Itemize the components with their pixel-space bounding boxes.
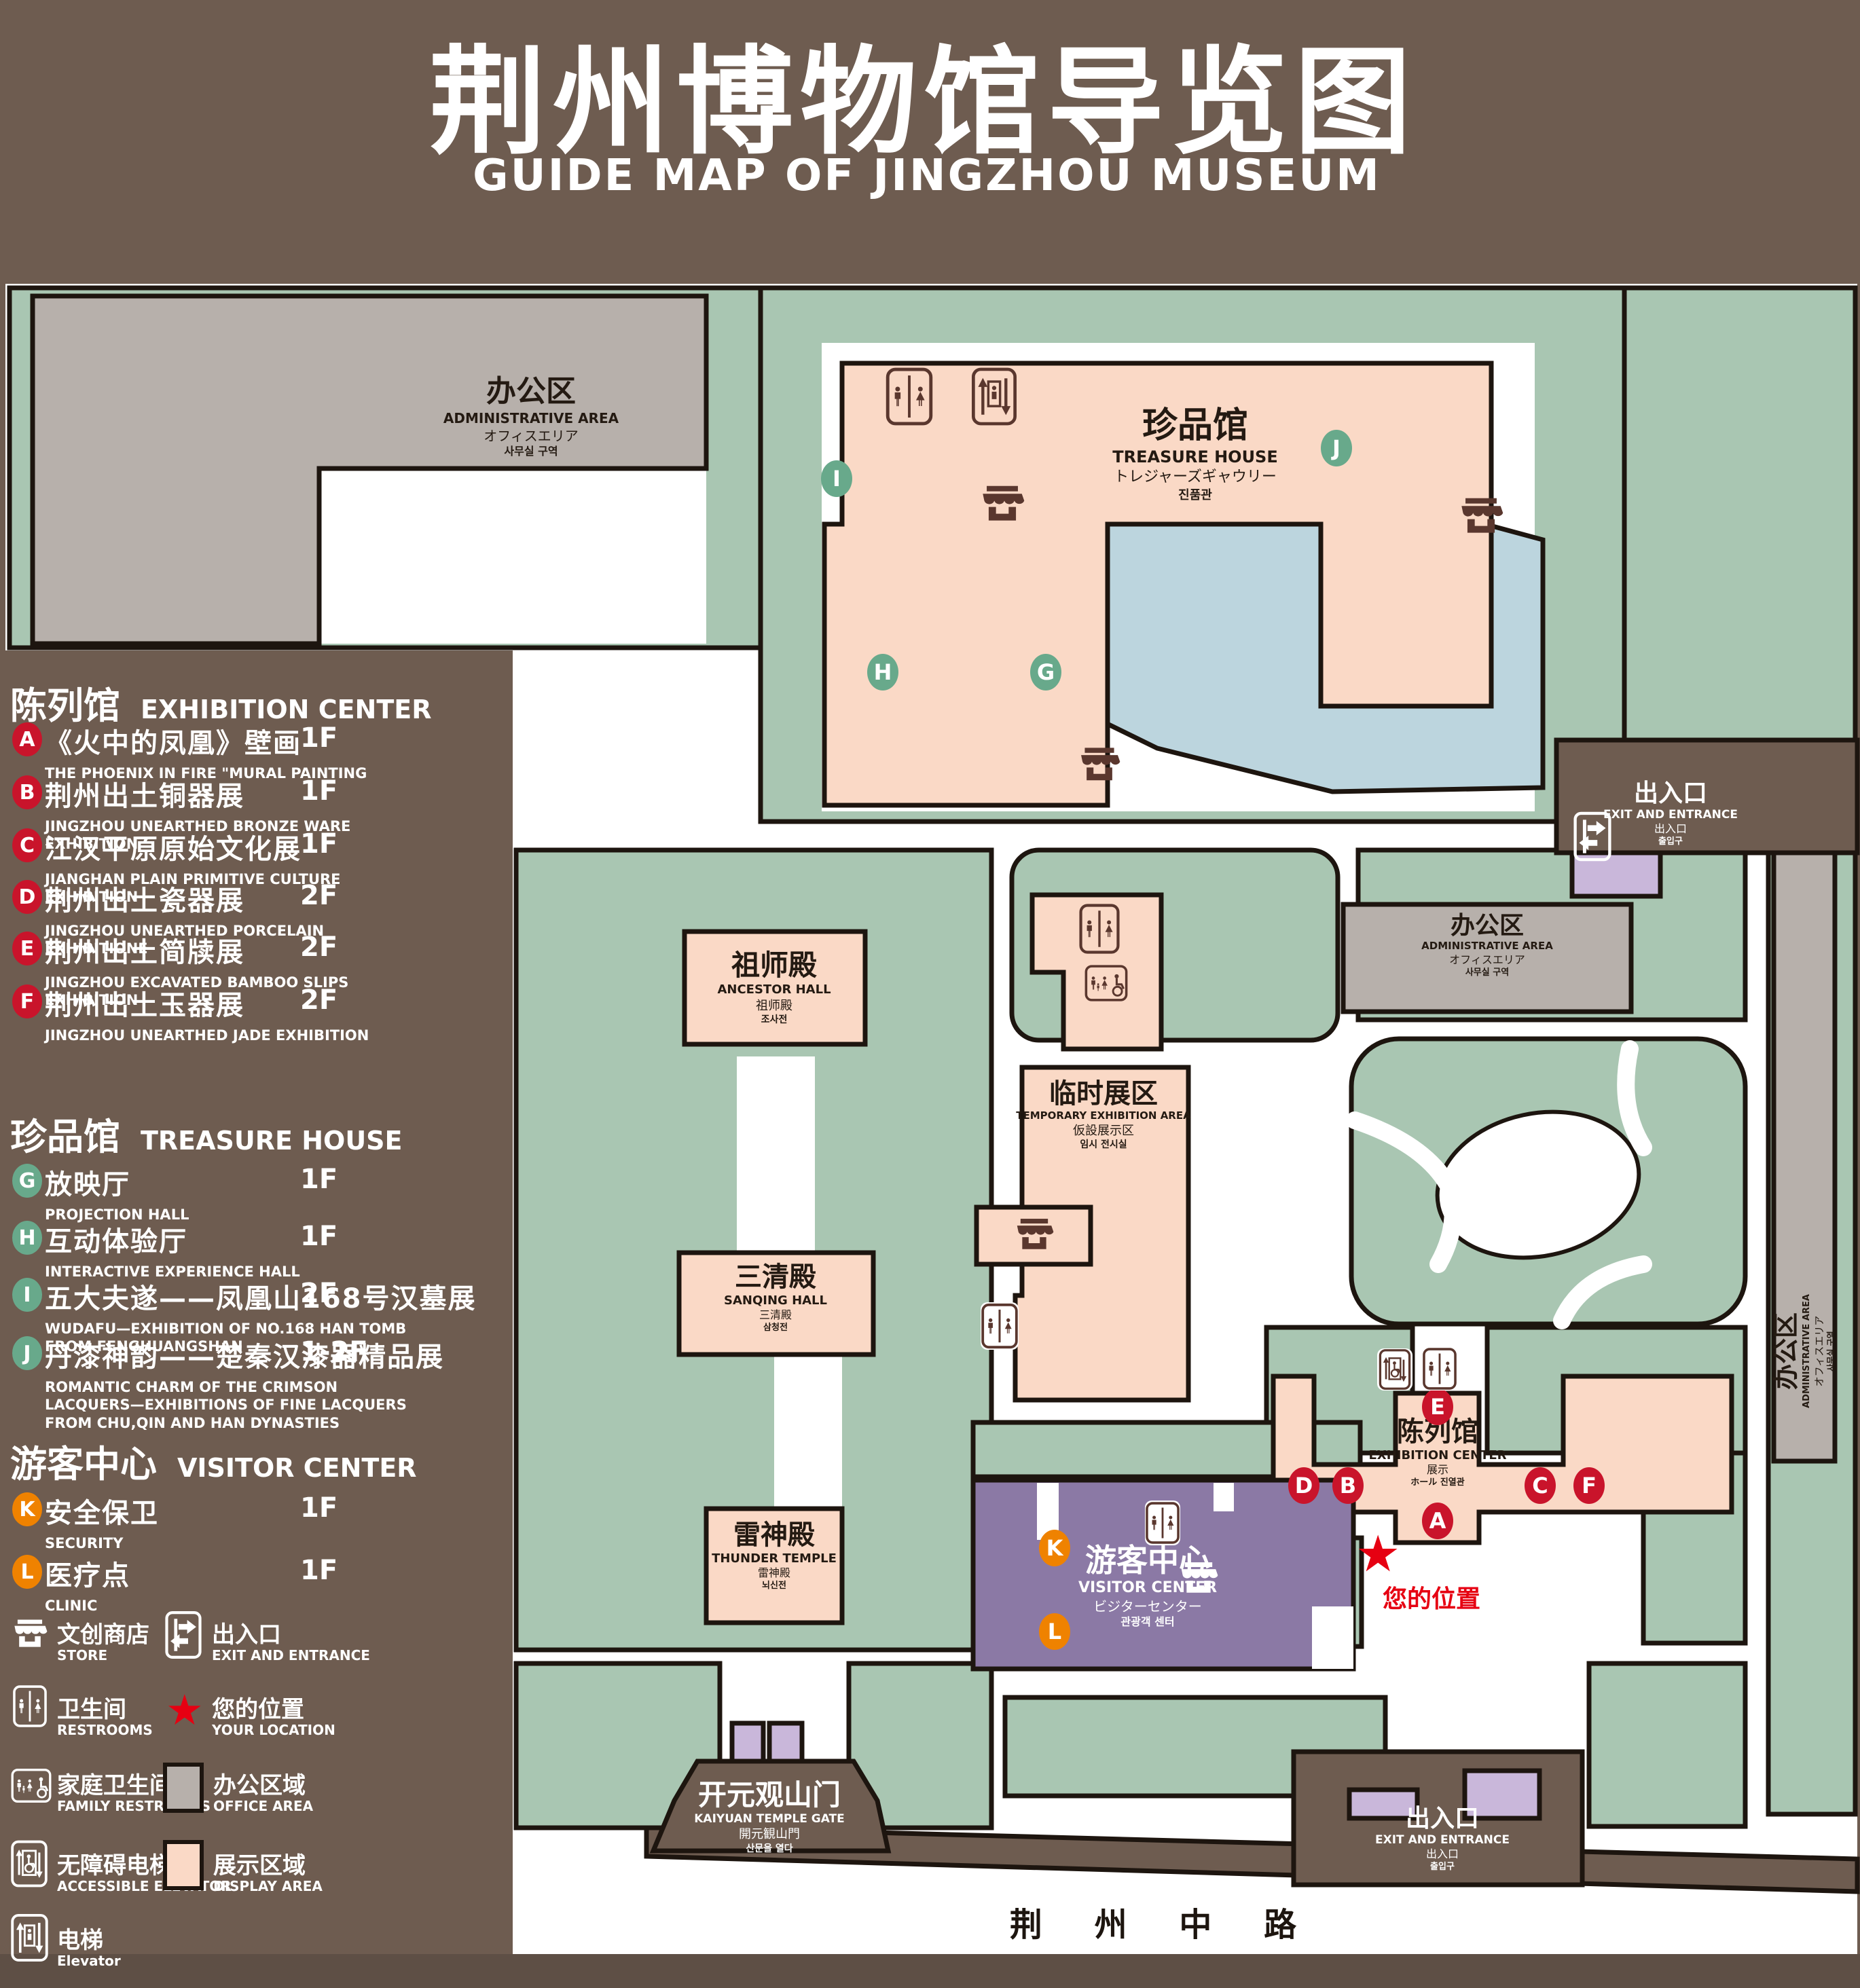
marker-e: E bbox=[1422, 1388, 1453, 1425]
store-icon bbox=[1459, 496, 1503, 538]
store-icon bbox=[1078, 745, 1120, 785]
badge-g: G bbox=[12, 1164, 42, 1198]
symbol-accessible-label-en: ACCESSIBLE ELEVATOR bbox=[57, 1878, 232, 1894]
courtyard bbox=[319, 468, 706, 644]
walk-path bbox=[1312, 1606, 1353, 1669]
symbol-exit-label: 出入口 bbox=[212, 1616, 281, 1649]
badge-a: A bbox=[12, 722, 42, 756]
label-sanqing-hall: 三清殿SANQING HALL 三清殿삼청전 bbox=[724, 1262, 827, 1334]
symbol-restroom-label-en: RESTROOMS bbox=[57, 1722, 153, 1738]
badge-f: F bbox=[12, 984, 42, 1018]
road-name: 荆 州 中 路 bbox=[1010, 1898, 1317, 1945]
marker-f: F bbox=[1573, 1467, 1605, 1504]
your-location-star-icon: ★ bbox=[1355, 1529, 1400, 1579]
restroom-icon bbox=[981, 1302, 1019, 1350]
badge-e: E bbox=[12, 932, 42, 965]
marker-h: H bbox=[867, 654, 898, 691]
label-admin-area: 办公区ADMINISTRATIVE AREA オフィスエリア사무실 구역 bbox=[443, 375, 619, 458]
green-area bbox=[1624, 288, 1855, 740]
badge-c: C bbox=[12, 828, 42, 862]
guide-map-sign: 荆州博物馆导览图 GUIDE MAP OF JINGZHOU MUSEUM bbox=[0, 0, 1860, 1988]
symbol-elevator-label-en: Elevator bbox=[57, 1953, 121, 1969]
legend-section-visitor-center: 游客中心VISITOR CENTER bbox=[10, 1434, 417, 1488]
walk-path bbox=[774, 1355, 842, 1511]
your-location-label: 您的位置 bbox=[1383, 1579, 1480, 1615]
gate-building bbox=[769, 1723, 802, 1761]
symbol-restroom-label: 卫生间 bbox=[57, 1691, 126, 1724]
label-exit-bottom: 出入口EXIT AND ENTRANCE 出入口출입구 bbox=[1375, 1805, 1510, 1873]
marker-j: J bbox=[1321, 430, 1352, 466]
green-area bbox=[1589, 1663, 1745, 1826]
label-exhibition-center: 陈列馆EXHIBITION CENTER 展示ホール 진열관 bbox=[1369, 1416, 1507, 1489]
label-ancestor-hall: 祖师殿ANCESTOR HALL 祖师殿조사전 bbox=[717, 949, 831, 1026]
store-icon bbox=[980, 483, 1025, 526]
store-icon bbox=[1179, 1560, 1218, 1597]
symbol-accessible-label: 无障碍电梯 bbox=[57, 1847, 172, 1880]
restroom-icon bbox=[12, 1684, 48, 1729]
accessible-elevator-icon bbox=[10, 1837, 48, 1890]
symbol-display-label-en: DISPLAY AREA bbox=[213, 1878, 323, 1894]
marker-a: A bbox=[1422, 1503, 1453, 1539]
restroom-icon bbox=[1422, 1347, 1457, 1391]
marker-b: B bbox=[1332, 1467, 1364, 1504]
restroom-icon bbox=[1145, 1501, 1180, 1545]
gate-building bbox=[732, 1723, 763, 1761]
store-icon bbox=[1015, 1217, 1054, 1253]
accessible-elevator-icon bbox=[1377, 1348, 1412, 1391]
store-icon bbox=[12, 1615, 48, 1654]
label-exit-top-right: 出入口EXIT AND ENTRANCE 出入口출입구 bbox=[1603, 779, 1738, 848]
symbol-family-label: 家庭卫生间 bbox=[57, 1767, 172, 1800]
symbol-display-label: 展示区域 bbox=[213, 1847, 306, 1880]
symbol-location-label-en: YOUR LOCATION bbox=[212, 1722, 335, 1738]
label-temporary-exhibition: 临时展区TEMPORARY EXHIBITION AREA 仮設展示区임시 전시… bbox=[1016, 1078, 1190, 1151]
family-restroom-icon bbox=[1084, 964, 1128, 1002]
badge-i: I bbox=[12, 1278, 42, 1312]
marker-l: L bbox=[1039, 1613, 1070, 1650]
badge-k: K bbox=[12, 1492, 42, 1526]
legend-section-treasure-house: 珍品馆TREASURE HOUSE bbox=[10, 1107, 403, 1160]
label-admin-right: 办公区ADMINISTRATIVE AREA オフィスエリア사무실 구역 bbox=[1421, 912, 1553, 979]
label-kaiyuan-gate: 开元观山门KAIYUAN TEMPLE GATE 開元観山門산문을 열다 bbox=[694, 1779, 845, 1855]
marker-d: D bbox=[1288, 1467, 1319, 1504]
elevator-icon bbox=[968, 367, 1021, 426]
symbol-store-label-en: STORE bbox=[57, 1647, 107, 1663]
symbol-office-label: 办公区域 bbox=[213, 1767, 306, 1800]
exit-icon bbox=[1573, 811, 1612, 862]
family-restroom-icon bbox=[11, 1760, 52, 1811]
badge-d: D bbox=[12, 880, 42, 914]
symbol-store-label: 文创商店 bbox=[57, 1616, 149, 1649]
label-treasure-house: 珍品馆TREASURE HOUSE トレジャーズギャウリー진품관 bbox=[1112, 406, 1277, 503]
walk-path bbox=[1214, 1483, 1234, 1511]
marker-g: G bbox=[1030, 654, 1061, 691]
exit-icon bbox=[164, 1609, 202, 1661]
road-bottom-strip bbox=[0, 1954, 1860, 1988]
badge-h: H bbox=[12, 1221, 42, 1255]
symbol-location-label: 您的位置 bbox=[212, 1691, 304, 1724]
restroom-icon bbox=[884, 367, 934, 426]
label-thunder-temple: 雷神殿THUNDER TEMPLE 雷神殿뇌신전 bbox=[712, 1520, 837, 1592]
badge-b: B bbox=[12, 775, 42, 809]
display-swatch bbox=[163, 1840, 204, 1890]
label-admin-strip: 办公区ADMINISTRATIVE AREA オフィスエリア사무실 구역 bbox=[1772, 1294, 1837, 1408]
office-swatch bbox=[163, 1763, 204, 1813]
marker-i: I bbox=[821, 460, 852, 497]
marker-c: C bbox=[1525, 1467, 1556, 1504]
marker-k: K bbox=[1039, 1530, 1070, 1566]
restroom-icon bbox=[1078, 903, 1120, 955]
walk-path bbox=[737, 1056, 815, 1260]
symbol-exit-label-en: EXIT AND ENTRANCE bbox=[212, 1647, 370, 1663]
symbol-elevator-label: 电梯 bbox=[57, 1921, 103, 1955]
badge-j: J bbox=[12, 1336, 42, 1370]
badge-l: L bbox=[12, 1555, 42, 1589]
elevator-icon bbox=[10, 1911, 49, 1965]
location-star-icon: ★ bbox=[166, 1689, 204, 1731]
symbol-office-label-en: OFFICE AREA bbox=[213, 1798, 313, 1814]
